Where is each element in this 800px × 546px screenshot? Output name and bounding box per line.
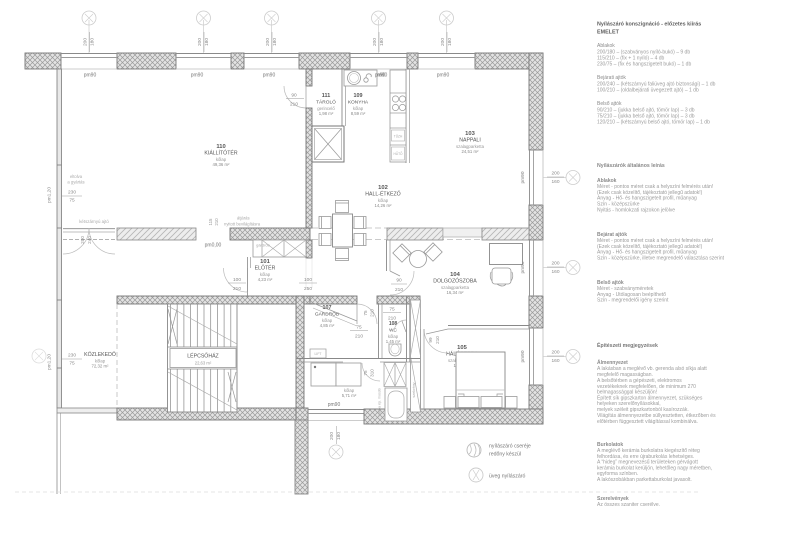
svg-text:180: 180 bbox=[90, 38, 96, 46]
svg-text:DOLGOZÓSZOBA: DOLGOZÓSZOBA bbox=[433, 278, 477, 285]
svg-text:Nyitás - homlokzati rajzokon j: Nyitás - homlokzati rajzokon jelölve bbox=[597, 208, 675, 214]
svg-text:210: 210 bbox=[355, 334, 363, 340]
svg-text:180: 180 bbox=[272, 38, 278, 46]
svg-text:103: 103 bbox=[465, 131, 475, 137]
svg-text:4,23 m²: 4,23 m² bbox=[258, 277, 273, 282]
svg-text:8,59 m²: 8,59 m² bbox=[351, 111, 366, 116]
svg-text:310: 310 bbox=[370, 369, 375, 377]
svg-text:Álmennyezet: Álmennyezet bbox=[597, 359, 628, 366]
svg-text:Nyílászárók általános leírás: Nyílászárók általános leírás bbox=[597, 163, 665, 169]
svg-text:A lakószobákban parkettaburkol: A lakószobákban parkettaburkolat javasol… bbox=[597, 477, 692, 483]
svg-text:49,36 m²: 49,36 m² bbox=[213, 162, 231, 167]
svg-text:160: 160 bbox=[551, 358, 559, 364]
svg-text:pm90: pm90 bbox=[520, 171, 526, 183]
svg-text:111: 111 bbox=[322, 93, 330, 99]
svg-text:ELŐTÉR: ELŐTÉR bbox=[255, 265, 276, 272]
svg-text:90: 90 bbox=[396, 278, 402, 284]
svg-text:90: 90 bbox=[291, 93, 297, 99]
svg-text:180: 180 bbox=[379, 38, 385, 46]
svg-text:100: 100 bbox=[304, 277, 312, 283]
svg-text:210: 210 bbox=[435, 336, 440, 344]
svg-text:101: 101 bbox=[260, 259, 270, 265]
svg-text:Szín - középszürke, illetve me: Szín - középszürke, illetve megrendelő v… bbox=[597, 256, 725, 262]
svg-text:átjárás: átjárás bbox=[237, 216, 250, 221]
svg-text:75: 75 bbox=[363, 370, 368, 376]
svg-text:75: 75 bbox=[69, 361, 75, 367]
svg-text:102: 102 bbox=[378, 185, 388, 191]
svg-text:75: 75 bbox=[69, 198, 75, 204]
svg-text:nyitott bevilágításra: nyitott bevilágításra bbox=[224, 222, 261, 227]
svg-text:pm90: pm90 bbox=[84, 73, 97, 79]
svg-text:LIFT: LIFT bbox=[315, 352, 322, 356]
svg-text:200: 200 bbox=[551, 349, 559, 355]
svg-text:200: 200 bbox=[265, 38, 271, 46]
svg-text:200: 200 bbox=[372, 38, 378, 46]
svg-text:160: 160 bbox=[551, 179, 559, 185]
svg-text:pm1,20: pm1,20 bbox=[47, 187, 53, 203]
svg-text:210: 210 bbox=[290, 102, 298, 108]
svg-text:14,26 m²: 14,26 m² bbox=[375, 203, 393, 208]
svg-text:200: 200 bbox=[197, 38, 203, 46]
svg-text:pm1,20: pm1,20 bbox=[47, 354, 53, 370]
svg-text:Bejárati ajtók: Bejárati ajtók bbox=[597, 75, 626, 81]
svg-text:105: 105 bbox=[457, 345, 467, 351]
svg-text:210: 210 bbox=[370, 309, 375, 317]
svg-text:210: 210 bbox=[395, 287, 403, 293]
svg-text:NAPPALI: NAPPALI bbox=[459, 138, 481, 144]
svg-text:KONYHA: KONYHA bbox=[348, 100, 369, 106]
svg-text:200: 200 bbox=[440, 38, 446, 46]
svg-text:120/210 – (kétszárnyú belső: 120/210 – (kétszárnyú belső ajtó, tömör … bbox=[597, 120, 710, 126]
svg-text:Ablakok: Ablakok bbox=[597, 43, 615, 49]
svg-text:gárdrób: gárdrób bbox=[256, 243, 271, 248]
svg-text:22,63 m²: 22,63 m² bbox=[195, 361, 212, 366]
svg-text:pm90: pm90 bbox=[437, 73, 450, 79]
svg-text:100/210 – (oldalbejárati üve: 100/210 – (oldalbejárati üvegezett ajtó)… bbox=[597, 88, 699, 94]
svg-text:230: 230 bbox=[68, 190, 76, 196]
svg-text:pm90: pm90 bbox=[191, 73, 204, 79]
svg-text:200: 200 bbox=[551, 260, 559, 266]
svg-text:200: 200 bbox=[551, 170, 559, 176]
svg-text:EMELET: EMELET bbox=[597, 30, 620, 36]
svg-text:pm0,00: pm0,00 bbox=[205, 243, 222, 249]
svg-text:180: 180 bbox=[447, 38, 453, 46]
svg-text:230: 230 bbox=[68, 353, 76, 359]
svg-text:kádba ép. mosdó: kádba ép. mosdó bbox=[378, 388, 382, 416]
svg-text:LÉPCSŐHÁZ: LÉPCSŐHÁZ bbox=[187, 353, 218, 360]
svg-text:230/75 – (fix és hangsziget: 230/75 – (fix és hangszigetelt bukó) – 1… bbox=[597, 62, 691, 68]
svg-text:160: 160 bbox=[551, 269, 559, 275]
svg-text:előtérben függesztett világítá: előtérben függesztett világítással kombi… bbox=[597, 419, 698, 425]
svg-text:Az összes szaniter cserélve.: Az összes szaniter cserélve. bbox=[597, 502, 660, 508]
svg-text:TŰZH: TŰZH bbox=[394, 134, 403, 139]
svg-text:75: 75 bbox=[363, 310, 368, 316]
svg-text:HŰTŐ: HŰTŐ bbox=[393, 151, 403, 156]
svg-text:210: 210 bbox=[388, 316, 396, 322]
svg-text:Szín - megrendelői igény szeri: Szín - megrendelői igény szerint bbox=[597, 298, 669, 304]
svg-text:kétszárnyú ajtó: kétszárnyú ajtó bbox=[79, 219, 109, 224]
svg-text:16,34 m²: 16,34 m² bbox=[447, 290, 465, 295]
svg-text:redőny készül: redőny készül bbox=[489, 452, 521, 458]
svg-text:1,45 m²: 1,45 m² bbox=[386, 339, 401, 344]
svg-text:100: 100 bbox=[233, 277, 241, 283]
svg-text:pm90: pm90 bbox=[375, 73, 388, 79]
svg-text:75: 75 bbox=[389, 307, 395, 313]
svg-text:110: 110 bbox=[216, 144, 225, 150]
svg-text:pm90: pm90 bbox=[263, 73, 276, 79]
svg-text:5,71 m²: 5,71 m² bbox=[342, 393, 357, 398]
svg-text:200: 200 bbox=[80, 236, 85, 244]
svg-text:200: 200 bbox=[83, 38, 89, 46]
svg-text:Építészeti megjegyzések: Építészeti megjegyzések bbox=[597, 341, 658, 349]
svg-text:TÁROLÓ: TÁROLÓ bbox=[316, 99, 336, 106]
svg-text:210: 210 bbox=[214, 218, 219, 226]
svg-text:240: 240 bbox=[87, 236, 92, 244]
svg-text:115: 115 bbox=[208, 218, 213, 226]
svg-text:KÖZLEKEDŐ: KÖZLEKEDŐ bbox=[84, 351, 116, 358]
svg-text:Belső ajtók: Belső ajtók bbox=[597, 101, 622, 107]
svg-text:108: 108 bbox=[389, 321, 398, 327]
svg-text:a gyártás: a gyártás bbox=[67, 180, 84, 185]
svg-text:200: 200 bbox=[329, 432, 335, 440]
svg-text:109: 109 bbox=[354, 93, 363, 99]
svg-text:WC: WC bbox=[389, 328, 397, 333]
svg-text:pm90: pm90 bbox=[328, 402, 341, 408]
svg-text:99: 99 bbox=[428, 337, 433, 343]
svg-text:eltolva: eltolva bbox=[70, 174, 83, 179]
svg-text:szekrény: szekrény bbox=[412, 382, 416, 397]
svg-text:24,51 m²: 24,51 m² bbox=[462, 149, 480, 154]
svg-text:1,98 m²: 1,98 m² bbox=[319, 111, 334, 116]
svg-text:250: 250 bbox=[304, 286, 312, 292]
svg-text:75: 75 bbox=[356, 325, 362, 331]
svg-text:üveg nyílászáró: üveg nyílászáró bbox=[489, 474, 525, 480]
svg-text:104: 104 bbox=[450, 272, 460, 278]
svg-text:Nyílászáró konszignáció - előz: Nyílászáró konszignáció - előzetes kiírá… bbox=[597, 22, 701, 28]
svg-text:HALL-ÉTKEZŐ: HALL-ÉTKEZŐ bbox=[365, 191, 400, 198]
svg-text:4,85 m²: 4,85 m² bbox=[320, 323, 335, 328]
svg-text:210: 210 bbox=[233, 286, 241, 292]
svg-text:180: 180 bbox=[336, 432, 342, 440]
svg-text:72,32 m²: 72,32 m² bbox=[92, 364, 110, 369]
svg-text:180: 180 bbox=[204, 38, 210, 46]
svg-text:nyílászáró cseréje: nyílászáró cseréje bbox=[489, 444, 531, 450]
svg-text:KIÁLLÍTÓTÉR: KIÁLLÍTÓTÉR bbox=[204, 150, 237, 157]
svg-text:pm90: pm90 bbox=[520, 350, 526, 362]
